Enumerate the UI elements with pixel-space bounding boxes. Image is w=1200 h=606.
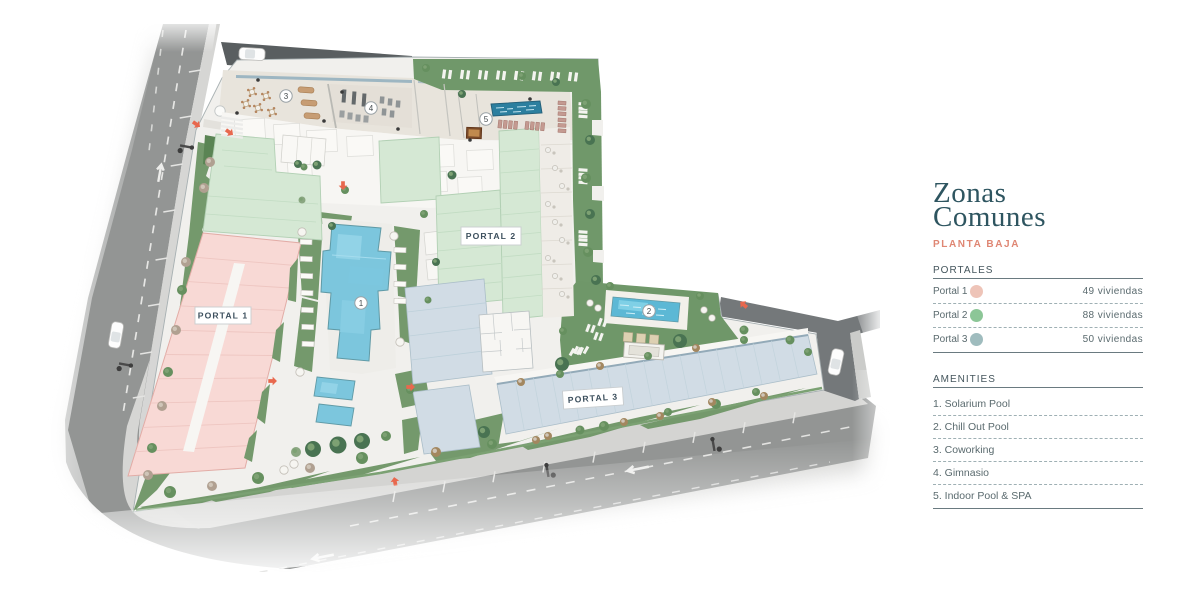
svg-text:PORTAL 2: PORTAL 2 <box>466 231 517 241</box>
svg-text:PORTAL 1: PORTAL 1 <box>198 311 249 321</box>
svg-text:3: 3 <box>284 92 289 101</box>
svg-text:1: 1 <box>359 299 364 308</box>
svg-text:2: 2 <box>647 307 652 316</box>
svg-text:5: 5 <box>484 115 489 124</box>
svg-text:4: 4 <box>369 104 374 113</box>
